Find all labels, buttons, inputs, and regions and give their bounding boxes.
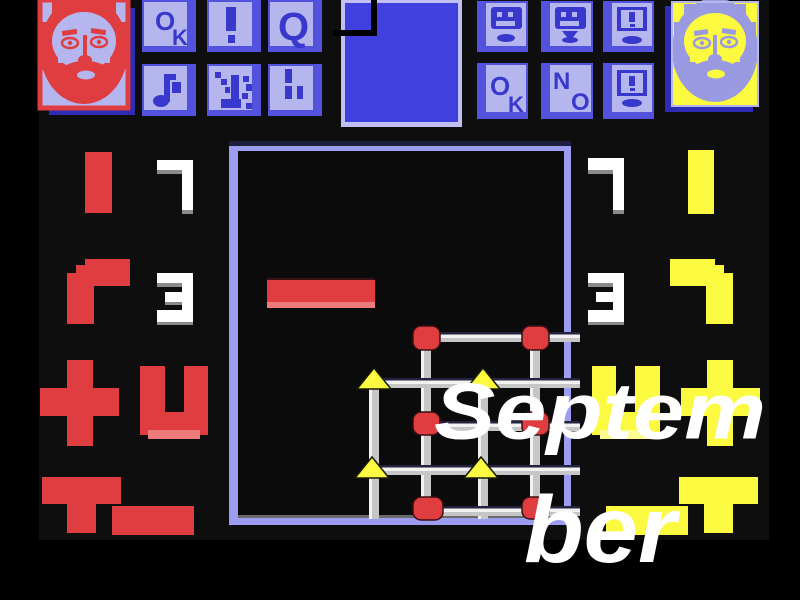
svg-text:Septem: Septem [434, 367, 766, 456]
svg-text:ber: ber [524, 477, 681, 583]
svg-text:N: N [553, 68, 570, 95]
svg-text:K: K [172, 25, 188, 50]
svg-text:Q: Q [278, 5, 309, 49]
svg-text:O: O [571, 89, 590, 116]
svg-text:K: K [508, 92, 524, 117]
